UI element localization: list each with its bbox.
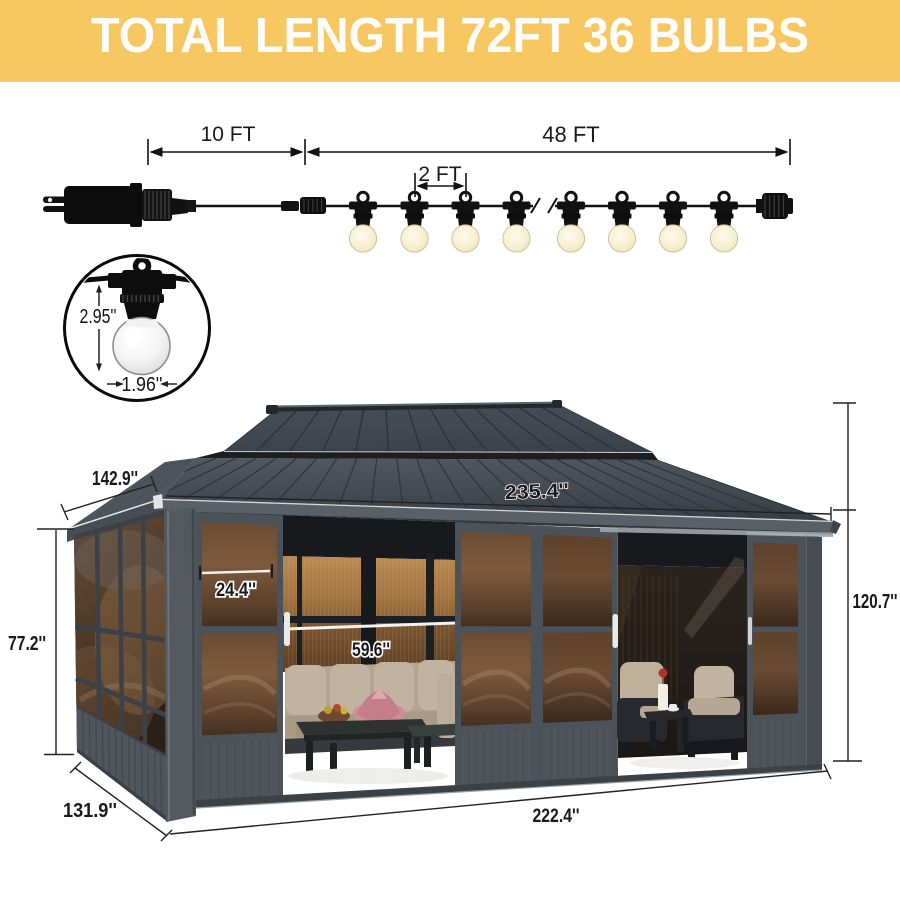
svg-text:48 FT: 48 FT [542,122,599,147]
svg-text:77.2'': 77.2'' [8,633,46,655]
svg-text:10 FT: 10 FT [201,123,256,146]
svg-text:142.9'': 142.9'' [92,468,138,490]
svg-text:1.96'': 1.96'' [122,374,163,396]
svg-text:24.4'': 24.4'' [216,580,256,601]
svg-text:120.7'': 120.7'' [853,591,898,613]
svg-text:59.6'': 59.6'' [352,640,390,661]
svg-text:235.4'': 235.4'' [504,480,569,504]
svg-text:2 FT: 2 FT [418,163,461,186]
svg-text:222.4'': 222.4'' [533,806,580,827]
svg-text:TOTAL LENGTH 72FT 36 BULBS: TOTAL LENGTH 72FT 36 BULBS [91,9,809,63]
svg-text:2.95'': 2.95'' [80,306,117,328]
svg-text:131.9'': 131.9'' [63,800,117,822]
